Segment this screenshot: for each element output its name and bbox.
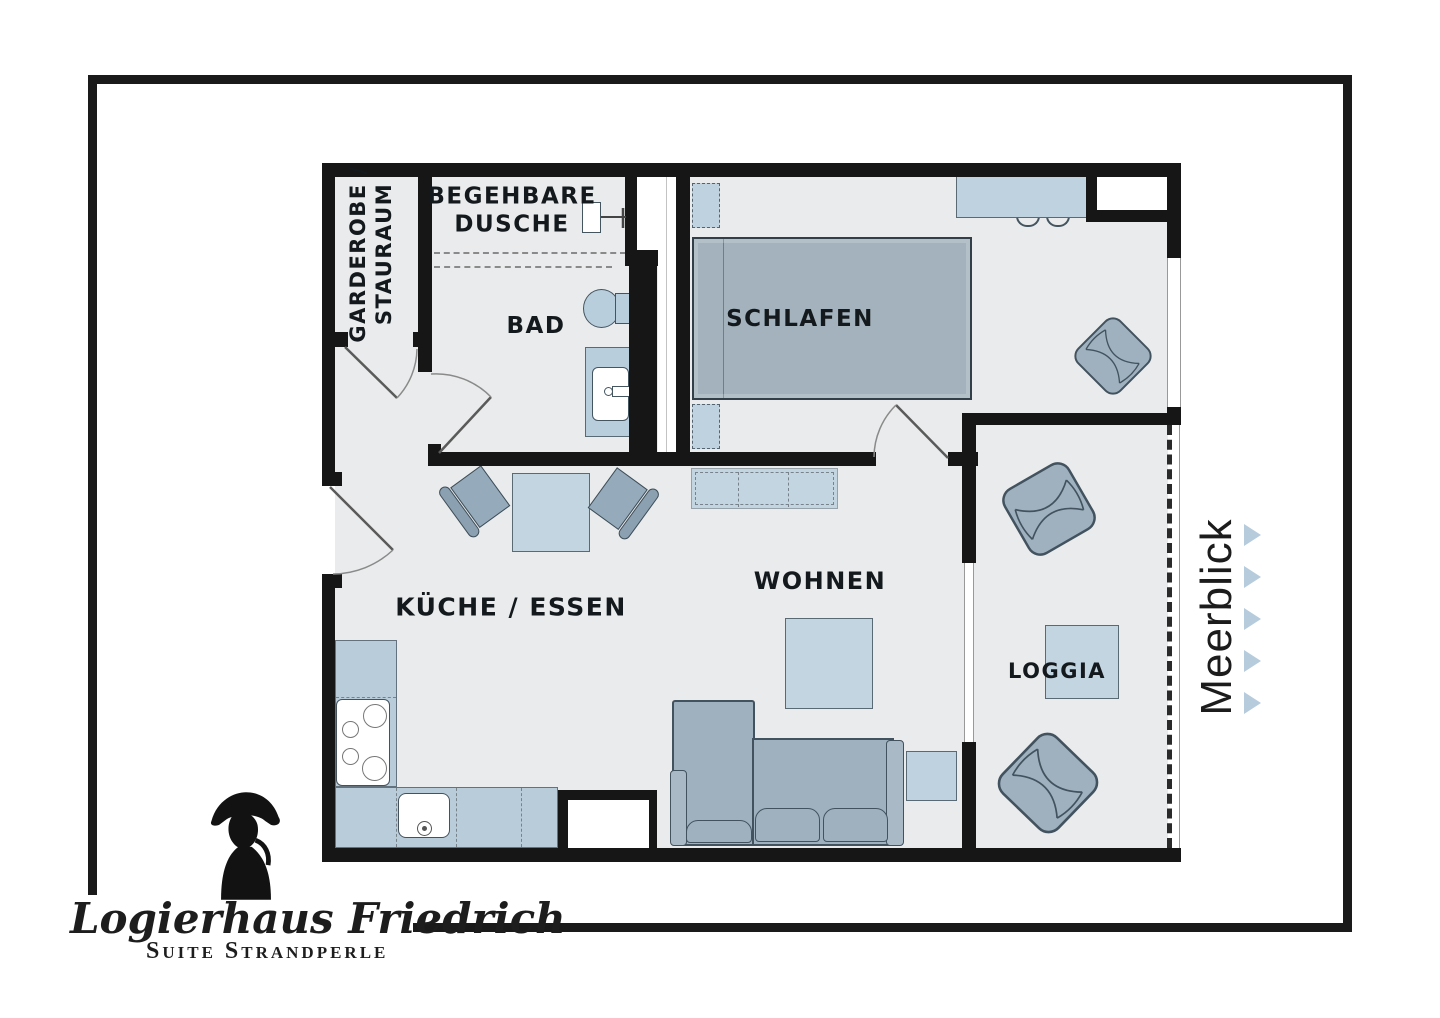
meerblick-arrow-icon bbox=[1244, 566, 1261, 588]
nightstand-top bbox=[692, 183, 720, 228]
faucet-knob bbox=[604, 387, 613, 396]
facade-niche bbox=[1097, 172, 1167, 210]
wall-bedroom-west bbox=[676, 163, 690, 452]
burner bbox=[363, 704, 387, 728]
meerblick-arrow-icon bbox=[1244, 692, 1261, 714]
shower-screen-line-2 bbox=[434, 266, 612, 268]
counter-divider bbox=[521, 788, 522, 847]
room-label-garderobe: GARDEROBE / STAURAUM bbox=[345, 165, 398, 342]
kitchen-sink bbox=[398, 793, 450, 838]
burner bbox=[342, 721, 359, 738]
frame-top bbox=[88, 75, 1352, 84]
room-label-dusche: BEGEHBARE DUSCHE bbox=[427, 183, 596, 238]
sofa-cushion bbox=[755, 808, 820, 842]
burner bbox=[342, 748, 359, 765]
friedrich-silhouette-icon bbox=[198, 788, 294, 902]
wall-bath-east-lower bbox=[629, 258, 657, 452]
counter-divider bbox=[456, 788, 457, 847]
counter-divider bbox=[336, 697, 396, 698]
wall-bottom bbox=[322, 848, 1181, 862]
dining-table bbox=[512, 473, 590, 552]
niche-wall-bottom bbox=[1086, 210, 1168, 222]
room-label-schlafen: SCHLAFEN bbox=[726, 306, 874, 332]
wall-bad-bedroom-south bbox=[428, 452, 876, 466]
frame-left bbox=[88, 75, 97, 895]
sofa-cushion bbox=[686, 820, 752, 843]
wall-left-upper bbox=[322, 163, 335, 472]
duct-shaft-upper bbox=[637, 177, 658, 252]
logo-name: Logierhaus Friedrich bbox=[70, 894, 566, 943]
wall-loggia-west-upper bbox=[962, 413, 976, 563]
sofa-armrest-right bbox=[886, 740, 904, 846]
meerblick-arrow-icon bbox=[1244, 608, 1261, 630]
loggia-glass-door bbox=[964, 563, 974, 742]
wall-east-upper bbox=[1167, 163, 1181, 258]
side-table bbox=[906, 751, 957, 801]
frame-right bbox=[1343, 75, 1352, 932]
loggia-outer-line bbox=[1179, 425, 1180, 848]
wall-top bbox=[322, 163, 1181, 177]
meerblick-arrow-icon bbox=[1244, 524, 1261, 546]
room-label-loggia: LOGGIA bbox=[1008, 659, 1106, 683]
floorplan-page: GARDEROBE / STAURAUM BEGEHBARE DUSCHE BA… bbox=[0, 0, 1440, 1018]
stove bbox=[336, 699, 390, 786]
sofa-cushion bbox=[823, 808, 888, 842]
wall-loggia-west-lower bbox=[962, 742, 976, 862]
coffee-table bbox=[785, 618, 873, 709]
nightstand-bottom bbox=[692, 404, 720, 449]
logo-subtitle: Suite Strandperle bbox=[146, 938, 388, 965]
duct-shaft-long bbox=[658, 177, 676, 452]
drain bbox=[417, 821, 432, 836]
wall-niche-interior bbox=[568, 800, 649, 848]
wall-east-corner bbox=[1167, 407, 1181, 425]
sideboard bbox=[691, 468, 838, 509]
meerblick-arrow-icon bbox=[1244, 650, 1261, 672]
meerblick-label: Meerblick bbox=[1192, 518, 1242, 715]
wall-loggia-north bbox=[962, 413, 1181, 425]
counter-divider bbox=[396, 788, 397, 847]
wall-bath-east-upper bbox=[625, 177, 637, 258]
room-label-kueche: KÜCHE / ESSEN bbox=[395, 593, 627, 622]
room-label-wohnen: WOHNEN bbox=[754, 567, 887, 595]
loggia-open-edge bbox=[1167, 425, 1172, 848]
shower-screen-line-1 bbox=[434, 252, 626, 254]
garderobe-door-stub-right bbox=[413, 332, 432, 347]
burner bbox=[362, 756, 387, 781]
desk-sideboard bbox=[956, 172, 1087, 218]
room-label-bad: BAD bbox=[507, 313, 566, 339]
entry-door-stub-top bbox=[322, 472, 342, 486]
bedroom-window bbox=[1167, 258, 1181, 407]
meerblick-arrows bbox=[1244, 524, 1261, 714]
sofa-armrest-left bbox=[670, 770, 687, 846]
wall-left-lower bbox=[322, 574, 335, 862]
